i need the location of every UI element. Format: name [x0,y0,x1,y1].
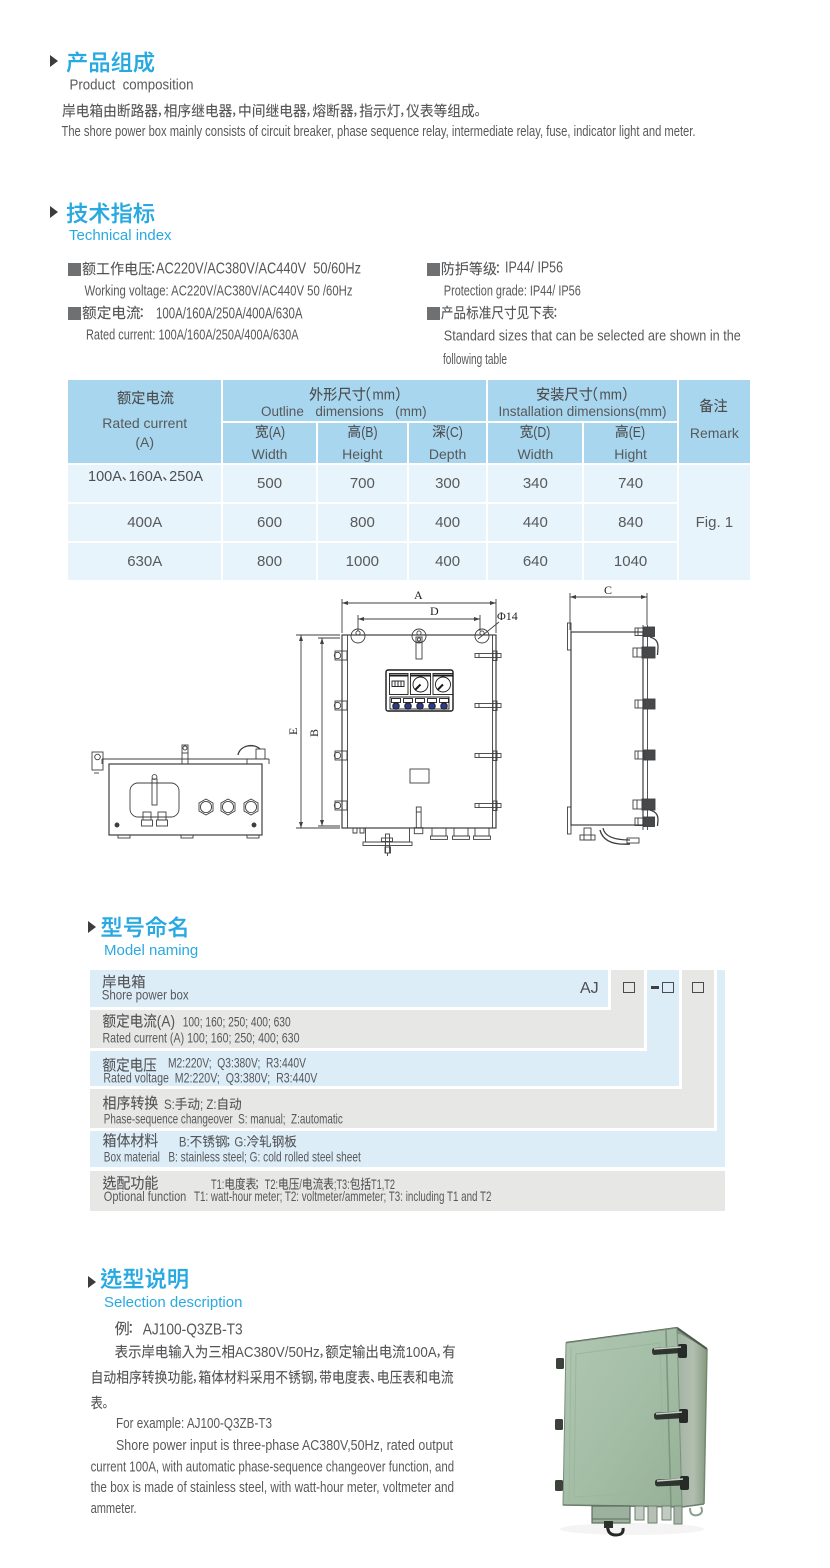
svg-text:T1,T2: T1,T2 [371,1177,395,1192]
svg-text:(C): (C) [446,425,463,441]
svg-text:B:: B: [179,1134,190,1149]
svg-text:250A: 250A [169,469,203,485]
svg-text:100A: 100A [406,1344,437,1361]
svg-text:mm: mm [373,387,396,404]
svg-text:(B): (B) [361,425,377,441]
svg-text:160A: 160A [129,469,163,485]
svg-text:(E): (E) [629,425,645,441]
svg-text:/: / [299,1177,302,1192]
svg-text:T1:: T1: [211,1177,224,1192]
svg-text:G:: G: [234,1134,246,1149]
svg-text:(D): (D) [533,425,550,441]
svg-text:; Z:: ; Z: [200,1097,217,1112]
svg-text:(A): (A) [269,425,285,441]
svg-text:100A: 100A [88,469,122,485]
svg-text:mm: mm [600,387,623,404]
svg-text:T2:: T2: [265,1177,278,1192]
svg-text:(A): (A) [157,1014,175,1031]
svg-text:S:: S: [164,1097,175,1112]
svg-text:;T3:: ;T3: [334,1177,350,1192]
svg-text:AC380V/50Hz: AC380V/50Hz [235,1344,320,1361]
